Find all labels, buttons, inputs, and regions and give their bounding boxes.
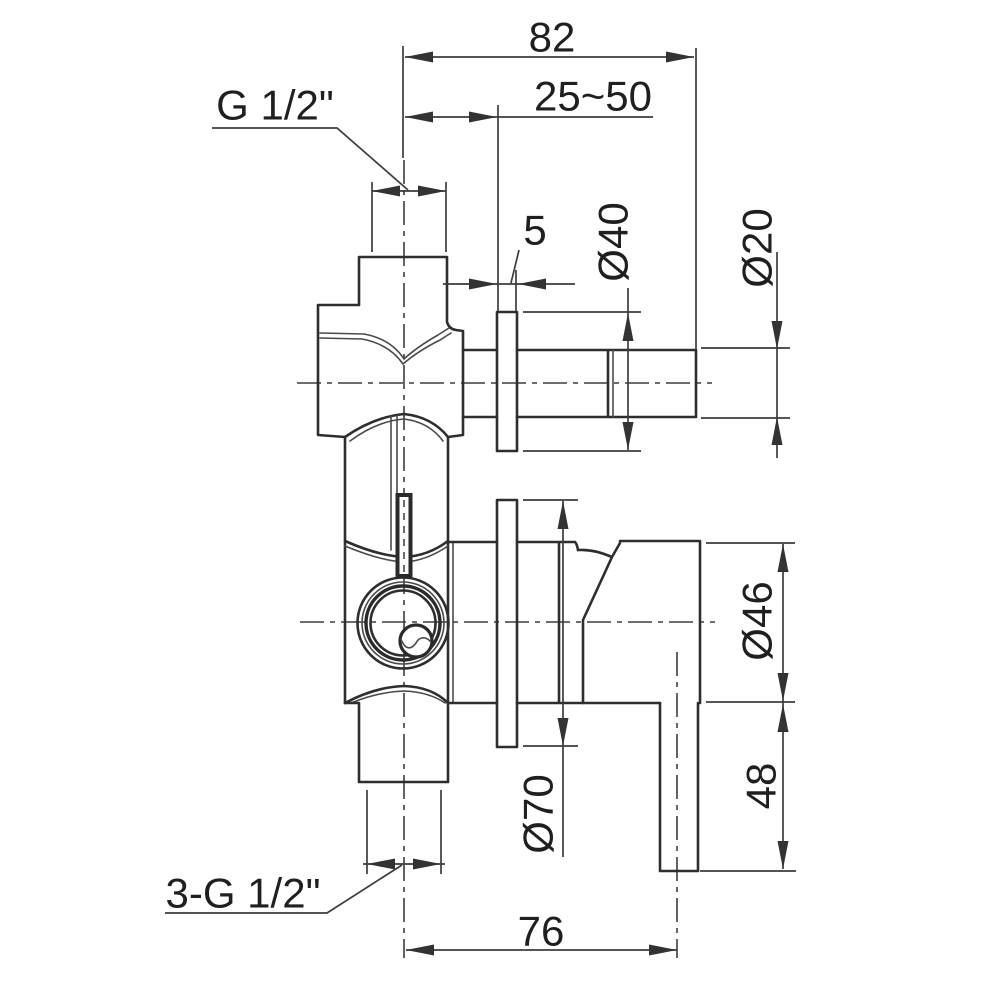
shower-valve-dimension-drawing: 82 25~50 G 1/2" 5 Ø40 Ø20 Ø70 Ø46 48 3-G… xyxy=(0,0,1000,1000)
dim-label-76: 76 xyxy=(518,908,565,955)
thread-label-bottom: 3-G 1/2" xyxy=(166,870,321,917)
dia-label-70: Ø70 xyxy=(515,774,562,853)
handle-stem-slot xyxy=(398,495,411,576)
dim-label-82: 82 xyxy=(529,14,576,61)
dia-label-40: Ø40 xyxy=(590,202,637,281)
dim-label-5: 5 xyxy=(523,207,546,254)
dia-label-20: Ø20 xyxy=(734,208,781,287)
technical-drawing-canvas: 82 25~50 G 1/2" 5 Ø40 Ø20 Ø70 Ø46 48 3-G… xyxy=(0,0,1000,1000)
diverter-knob-circle xyxy=(400,625,432,657)
dim-label-25-50: 25~50 xyxy=(534,73,652,120)
thread-label-top: G 1/2" xyxy=(216,82,334,129)
dim-label-48: 48 xyxy=(738,763,785,810)
dia-label-46: Ø46 xyxy=(734,581,781,660)
